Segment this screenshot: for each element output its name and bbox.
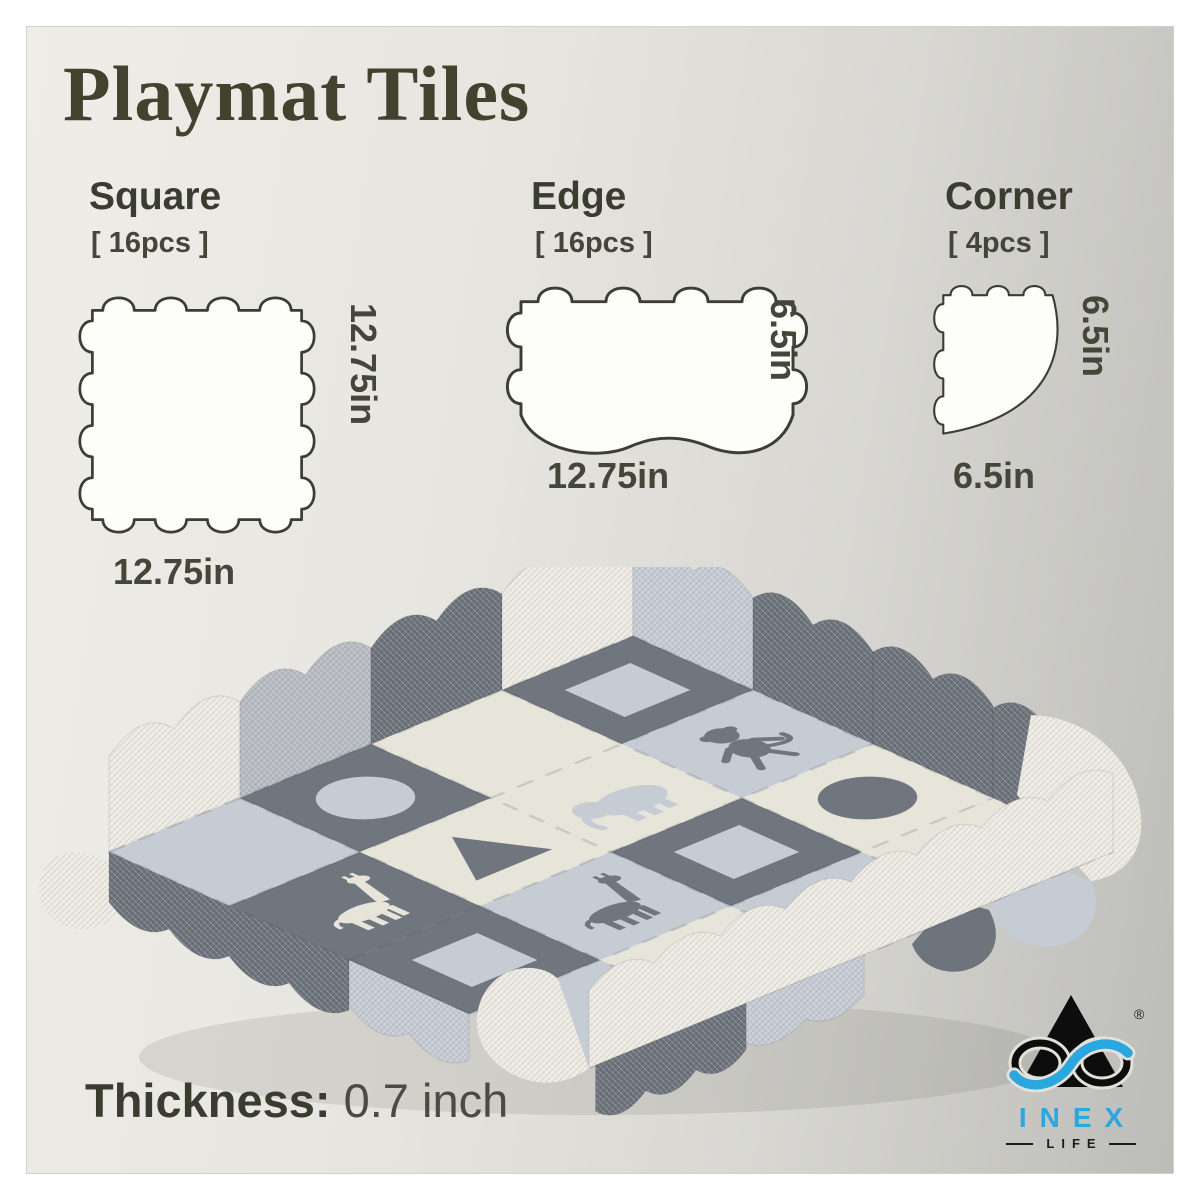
section-title-square: Square: [89, 175, 221, 219]
edge-width-label: 12.75in: [547, 455, 669, 497]
corner-width-label: 6.5in: [953, 455, 1035, 497]
registered-mark: ®: [1134, 1006, 1145, 1022]
corner-height-label: 6.5in: [1077, 295, 1113, 377]
thickness-value: 0.7 inch: [344, 1074, 509, 1127]
playmat-illustration: [29, 567, 1149, 1127]
section-title-edge: Edge: [531, 175, 626, 219]
section-count-square: [ 16pcs ]: [91, 227, 209, 260]
section-count-edge: [ 16pcs ]: [535, 227, 653, 260]
thickness-label: Thickness:: [85, 1074, 331, 1127]
edge-height-label: 6.5in: [765, 299, 801, 381]
logo-brand-text: INEX: [995, 1102, 1147, 1134]
infographic-canvas: Playmat Tiles Square [ 16pcs ] 12.75in 1…: [26, 26, 1174, 1174]
corner-tile-diagram: [919, 279, 1089, 449]
page-frame: Playmat Tiles Square [ 16pcs ] 12.75in 1…: [0, 0, 1200, 1200]
square-height-label: 12.75in: [345, 303, 381, 425]
thickness-note: Thickness: 0.7 inch: [85, 1073, 508, 1128]
brand-logo: ® INEX LIFE: [995, 989, 1147, 1151]
logo-sub-brand: LIFE: [995, 1136, 1147, 1151]
square-tile-diagram: [61, 279, 333, 551]
section-count-corner: [ 4pcs ]: [948, 227, 1050, 260]
inex-logo-icon: ®: [996, 989, 1146, 1101]
logo-left-line: [1006, 1143, 1033, 1145]
logo-right-line: [1109, 1143, 1136, 1145]
page-title: Playmat Tiles: [63, 49, 530, 139]
section-title-corner: Corner: [945, 175, 1073, 219]
logo-sub-brand-text: LIFE: [1039, 1136, 1102, 1151]
